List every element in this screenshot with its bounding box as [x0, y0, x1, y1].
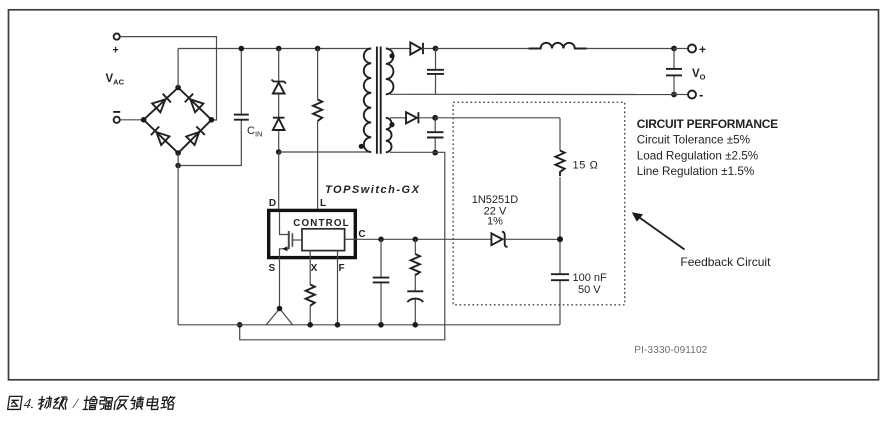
svg-text:S: S	[268, 263, 275, 274]
svg-text:-: -	[699, 87, 703, 102]
svg-text:1N5251D: 1N5251D	[472, 194, 519, 206]
svg-text:+: +	[699, 43, 706, 57]
svg-text:100 nF: 100 nF	[573, 272, 608, 284]
svg-text:1%: 1%	[487, 216, 503, 228]
svg-text:PI-3330-091102: PI-3330-091102	[634, 345, 707, 356]
svg-text:X: X	[311, 263, 318, 274]
svg-text:F: F	[338, 263, 344, 274]
svg-text:50 V: 50 V	[578, 284, 601, 296]
svg-text:CIRCUIT PERFORMANCE: CIRCUIT PERFORMANCE	[637, 117, 778, 131]
svg-text:Feedback Circuit: Feedback Circuit	[680, 255, 771, 269]
svg-text:Circuit Tolerance ±5%: Circuit Tolerance ±5%	[637, 134, 750, 147]
svg-text:Line Regulation ±1.5%: Line Regulation ±1.5%	[637, 165, 755, 178]
svg-text:C: C	[358, 229, 365, 240]
svg-text:4.: 4.	[23, 396, 36, 412]
svg-text:L: L	[320, 198, 326, 209]
svg-text:D: D	[269, 198, 276, 209]
svg-text:TOPSwitch-GX: TOPSwitch-GX	[325, 184, 420, 196]
svg-text:CONTROL: CONTROL	[293, 218, 349, 229]
svg-text:15 Ω: 15 Ω	[573, 160, 599, 172]
svg-text:Load Regulation ±2.5%: Load Regulation ±2.5%	[637, 149, 758, 162]
svg-text:+: +	[112, 45, 118, 57]
